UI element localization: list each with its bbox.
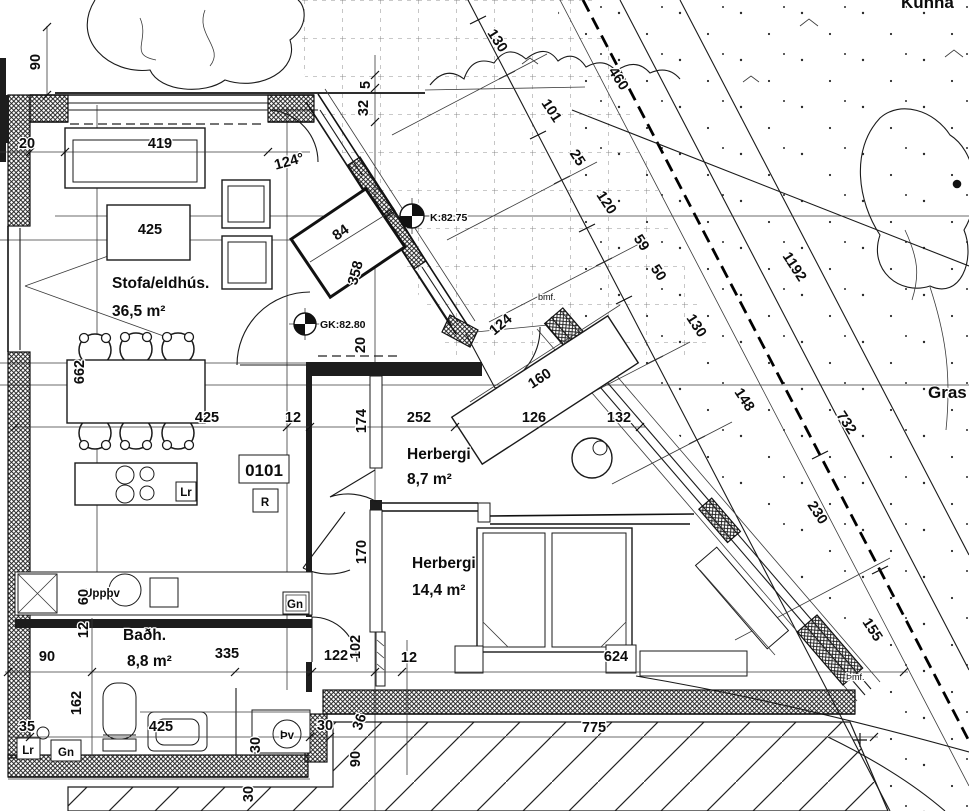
room-bedroom1-area: 8,7 m² (407, 471, 452, 488)
dim-60: 60 (76, 589, 92, 605)
dim-335: 335 (215, 646, 239, 662)
dim-30c: 30 (241, 786, 257, 802)
dim-v20: 20 (353, 337, 369, 353)
sofa (65, 128, 205, 188)
room-living-area: 36,5 m² (112, 303, 165, 320)
room-bath-area: 8,8 m² (127, 653, 172, 670)
toilet (103, 683, 136, 739)
dim-624: 624 (604, 649, 628, 665)
door-leaf-open (376, 632, 385, 686)
door-arc-bedroom1 (330, 470, 377, 502)
dim-30b: 30 (317, 718, 333, 734)
dim-top90: 90 (28, 54, 44, 70)
gn-label-bath: Gn (58, 747, 74, 759)
dim-122: 122 (324, 648, 348, 664)
dim-sofa419: 419 (148, 136, 172, 152)
kitchen-island (75, 463, 197, 505)
dim-90b: 90 (348, 751, 364, 767)
dim-252: 252 (407, 410, 431, 426)
note-bmf: bmf. (538, 292, 556, 302)
apartment-number: 0101 (245, 461, 283, 480)
bedside-left (455, 646, 483, 673)
dim-sideboard425: 425 (138, 222, 162, 238)
floor-plan-drawing: Stofa/eldhús. 36,5 m² Herbergi 8,7 m² He… (0, 0, 969, 811)
dim-174: 174 (354, 409, 370, 433)
wardrobe (696, 547, 789, 655)
kitchen-sink (150, 578, 178, 607)
angle-124deg: 124° (273, 150, 306, 173)
dim-102: 102 (348, 635, 364, 659)
dim-30a: 30 (248, 737, 264, 753)
double-bed (455, 528, 747, 676)
wall-living-hall (306, 362, 482, 376)
level-k-label: K:82.75 (430, 212, 468, 224)
lr-label-island: Lr (180, 487, 192, 499)
note-thmf: Þmf. (846, 672, 865, 682)
level-gk-label: GK:82.80 (320, 319, 366, 331)
dim-662: 662 (72, 360, 88, 384)
dim-32: 32 (356, 100, 372, 116)
dim-table425: 425 (195, 410, 219, 426)
dim-left20: 20 (19, 136, 35, 152)
dim-35: 35 (19, 719, 35, 735)
dim-bath425: 425 (149, 719, 173, 735)
room-bath-name: Baðh. (123, 627, 166, 644)
room-living-name: Stofa/eldhús. (112, 275, 209, 292)
gras-label: Gras (928, 383, 967, 402)
dim-12a: 12 (285, 410, 301, 426)
dim-bath12: 12 (76, 622, 92, 638)
dim-12b: 12 (401, 650, 417, 666)
washer-label: Þv (280, 730, 295, 742)
top-corner-text: Kunna (901, 0, 954, 12)
level-marker-gk (289, 308, 321, 340)
lr-label-bath: Lr (22, 745, 34, 757)
dim-170: 170 (354, 540, 370, 564)
room-bedroom1-name: Herbergi (407, 446, 471, 463)
dim-5: 5 (358, 81, 374, 89)
dim-162: 162 (69, 691, 85, 715)
room-bedroom2-name: Herbergi (412, 555, 476, 572)
floor-plan-page: Stofa/eldhús. 36,5 m² Herbergi 8,7 m² He… (0, 0, 969, 811)
gn-label-kitchen: Gn (287, 599, 303, 611)
room-bedroom2-area: 14,4 m² (412, 582, 465, 599)
dim-775: 775 (582, 720, 606, 736)
dim-126: 126 (522, 410, 546, 426)
tree-outline-1 (87, 0, 304, 89)
dim-132: 132 (607, 410, 631, 426)
dim-bath90: 90 (39, 649, 55, 665)
kitchen-counter (15, 572, 312, 615)
r-label: R (261, 497, 270, 509)
